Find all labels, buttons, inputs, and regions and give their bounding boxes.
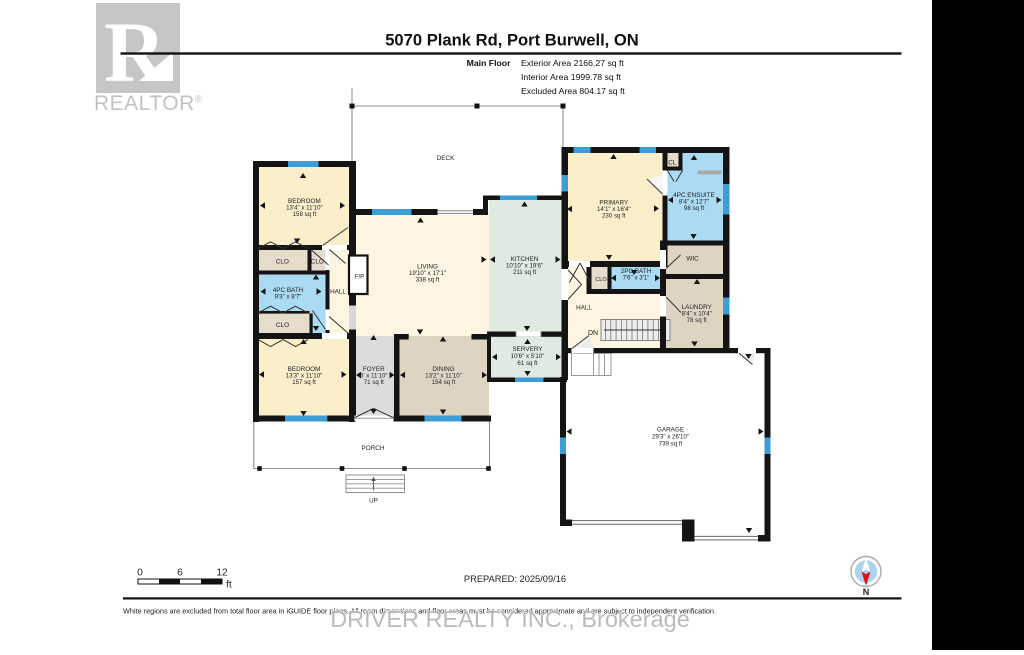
- svg-text:PREPARED: 2025/09/16: PREPARED: 2025/09/16: [464, 574, 566, 584]
- svg-text:Interior Area 1999.78 sq ft: Interior Area 1999.78 sq ft: [521, 72, 622, 82]
- svg-text:12: 12: [216, 568, 228, 579]
- svg-text:157 sq ft: 157 sq ft: [292, 379, 316, 386]
- svg-text:Exterior Area 2166.27 sq ft: Exterior Area 2166.27 sq ft: [521, 58, 624, 68]
- svg-text:158 sq ft: 158 sq ft: [293, 211, 317, 218]
- svg-text:78 sq ft: 78 sq ft: [687, 317, 707, 324]
- svg-text:61 sq ft: 61 sq ft: [517, 360, 537, 367]
- svg-text:10'6" x 5'10": 10'6" x 5'10": [511, 353, 545, 360]
- svg-text:GARAGE: GARAGE: [657, 427, 684, 434]
- svg-text:UP: UP: [369, 498, 378, 505]
- svg-text:F/P: F/P: [355, 275, 364, 281]
- svg-text:211 sq ft: 211 sq ft: [513, 269, 536, 276]
- svg-text:ft: ft: [226, 580, 232, 591]
- svg-text:98 sq ft: 98 sq ft: [684, 205, 704, 212]
- svg-text:CLO: CLO: [276, 259, 289, 266]
- svg-text:71 sq ft: 71 sq ft: [364, 379, 384, 386]
- svg-text:154 sq ft: 154 sq ft: [432, 379, 456, 386]
- svg-text:DRIVER REALTY INC., Brokerage: DRIVER REALTY INC., Brokerage: [330, 606, 690, 632]
- svg-text:CL: CL: [668, 160, 677, 167]
- svg-text:9'3" x 8'7": 9'3" x 8'7": [275, 294, 302, 301]
- svg-text:CLO: CLO: [276, 322, 289, 329]
- svg-text:338 sq ft: 338 sq ft: [416, 277, 440, 284]
- svg-text:REALTOR®: REALTOR®: [94, 92, 203, 115]
- svg-text:0: 0: [137, 568, 143, 579]
- svg-text:WIC: WIC: [686, 256, 699, 263]
- svg-text:CLO: CLO: [595, 277, 607, 283]
- svg-text:Main Floor: Main Floor: [467, 58, 512, 68]
- svg-text:R: R: [104, 4, 167, 100]
- svg-text:739 sq ft: 739 sq ft: [659, 441, 683, 448]
- svg-text:PORCH: PORCH: [362, 445, 385, 452]
- svg-text:Excluded Area 804.17 sq ft: Excluded Area 804.17 sq ft: [521, 86, 625, 96]
- svg-text:SERVERY: SERVERY: [512, 346, 543, 353]
- svg-text:N: N: [863, 587, 870, 597]
- svg-text:HALL: HALL: [576, 305, 592, 312]
- svg-text:CLO: CLO: [311, 259, 324, 266]
- svg-text:6: 6: [177, 568, 183, 579]
- svg-text:HALL: HALL: [330, 289, 346, 296]
- svg-text:7'6" x 3'1": 7'6" x 3'1": [623, 275, 650, 282]
- svg-text:DN: DN: [588, 330, 598, 337]
- svg-text:DECK: DECK: [437, 155, 455, 162]
- svg-text:29'3" x 26'10": 29'3" x 26'10": [652, 434, 689, 441]
- svg-text:230 sq ft: 230 sq ft: [602, 213, 626, 220]
- svg-text:5070 Plank Rd, Port Burwell, O: 5070 Plank Rd, Port Burwell, ON: [385, 31, 639, 50]
